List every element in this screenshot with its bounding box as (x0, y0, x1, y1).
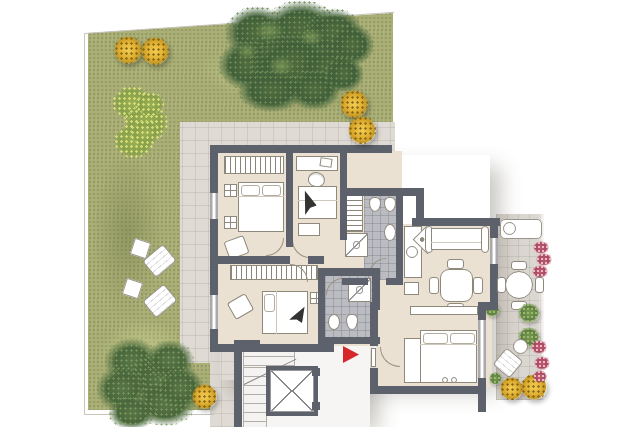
terrace-planter-pot (513, 339, 528, 354)
tree-small-blob-6 (108, 396, 156, 427)
wall-bathroom-1-bottom-b (386, 278, 403, 285)
wall-stairwell-top (234, 340, 260, 347)
yellow-bush-garden-1 (114, 36, 142, 64)
elevator-door-jamb-bottom (312, 402, 320, 410)
wall-bedrooms-divider (210, 256, 290, 264)
wall-divider-stub (308, 256, 324, 264)
tree-large-highlight-3 (268, 56, 294, 76)
sink-bathroom-2 (328, 314, 340, 330)
sofa-living (431, 228, 482, 250)
dining-chair-west (429, 277, 439, 294)
page: { "meta": {"title": "apartment-floor-pla… (0, 0, 640, 427)
lime-bush-blob-5 (130, 120, 160, 146)
slipper-b (451, 377, 457, 383)
wall-living-bottom (376, 386, 486, 394)
single-bed-study (298, 186, 337, 219)
window-bedroom-1 (210, 193, 218, 219)
tree-large-highlight-4 (236, 42, 258, 60)
shower-bathroom-1 (345, 233, 368, 257)
terrace-lounger-pillow (503, 222, 516, 235)
daybed-pillow-b (450, 333, 475, 344)
lime-bush-blob-4 (136, 92, 164, 116)
wall-bedroom1-study (286, 153, 293, 247)
pillow-bedroom-1-b (262, 185, 281, 196)
floor-plan-canvas (0, 0, 640, 427)
yellow-bush-garden-4 (348, 116, 376, 144)
wall-landing-right-b (370, 368, 378, 394)
terrace-bush-1 (518, 303, 540, 323)
stairs-lower-flight (243, 367, 267, 427)
nightstand-bedroom-1-a (224, 184, 237, 197)
terrace-chair-east (535, 277, 544, 293)
window-bedroom-2 (210, 295, 218, 329)
pillow-bedroom-2 (264, 294, 275, 312)
tree-large-blob-10 (324, 56, 364, 92)
wall-step-right (478, 302, 498, 310)
kitchen-cabinet (404, 282, 419, 295)
wall-living-right-a (490, 226, 498, 238)
wardrobe-bedroom-1 (224, 156, 284, 174)
yellow-bush-garden-3 (340, 90, 368, 118)
tree-large-highlight-1 (255, 20, 285, 42)
sofa-armrest-right (481, 226, 489, 253)
wall-left-upper (210, 145, 218, 193)
daybed-chaise (404, 338, 421, 383)
elevator (266, 366, 318, 416)
wall-study-right (340, 153, 347, 240)
wall-bathroom-1-bottom-a (342, 278, 368, 285)
sink-bathroom-1 (384, 224, 396, 241)
yellow-bush-garden-2 (141, 37, 169, 65)
dining-table (440, 269, 473, 302)
wall-lower-right-b (478, 378, 486, 412)
entrance-door-leaf (371, 348, 376, 367)
yellow-bush-garden-5 (192, 384, 217, 409)
wall-bathroom-1-top (342, 188, 424, 196)
pillow-bedroom-1-a (241, 185, 260, 196)
wall-bathroom-2-top (318, 268, 380, 276)
window-living-east (490, 238, 498, 264)
terrace-chair-north (511, 261, 527, 270)
window-terrace-door (478, 320, 486, 378)
wall-kitchen-bath-divider (396, 196, 403, 284)
wall-stairwell-left (234, 340, 242, 427)
wall-bathroom-2-left (318, 268, 325, 344)
nightstand-bedroom-1-b (224, 216, 237, 229)
cabinet-study (298, 223, 320, 236)
pink-flowers-bottom-3 (533, 370, 547, 383)
pink-flowers-top-1 (533, 241, 549, 254)
terrace-round-table (505, 271, 533, 299)
wall-bathroom-2-bottom (318, 337, 380, 344)
slipper-a (442, 377, 448, 383)
elevator-door-jamb-top (312, 368, 320, 376)
wall-living-top (412, 218, 500, 226)
wardrobe-corridor (346, 190, 363, 232)
wall-top (210, 145, 392, 153)
tree-large-highlight-2 (300, 28, 324, 46)
wall-lower-right-a (478, 310, 486, 320)
desk-monitor-study (319, 157, 332, 168)
plot-boundary-left (84, 33, 85, 415)
daybed-pillow-a (423, 333, 448, 344)
pink-flowers-bottom-2 (534, 356, 550, 370)
wall-bathroom-2-right (372, 268, 380, 310)
yellow-bush-terrace-1 (500, 377, 523, 400)
kitchen-sink (406, 246, 418, 258)
dining-chair-north (447, 259, 464, 269)
wall-bottom-left (210, 344, 334, 352)
tv-sideboard (410, 306, 478, 315)
pink-flowers-bottom-1 (531, 340, 547, 354)
dining-chair-east (473, 277, 483, 294)
